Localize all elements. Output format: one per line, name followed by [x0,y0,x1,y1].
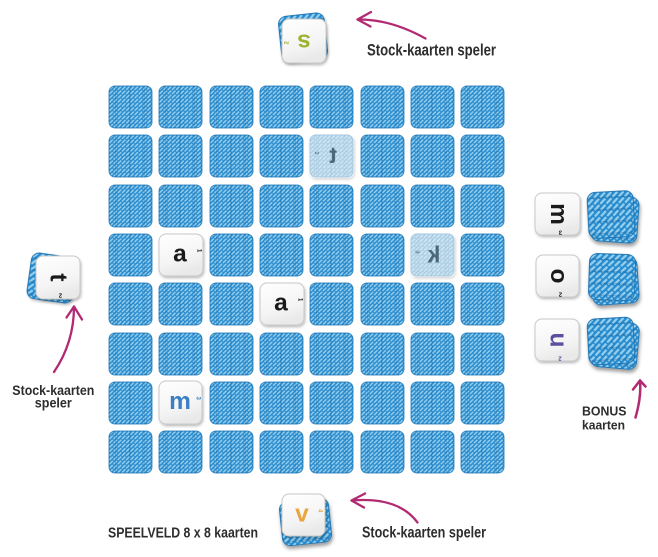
svg-text:kaarten: kaarten [582,417,625,432]
svg-text:a: a [173,241,187,268]
svg-text:speler: speler [35,394,72,410]
svg-text:o: o [545,269,572,284]
svg-text:SPEELVELD 8 x 8 kaarten: SPEELVELD 8 x 8 kaarten [108,524,258,541]
svg-text:v: v [295,501,309,528]
svg-text:m: m [169,388,191,415]
svg-text:a: a [274,290,288,317]
svg-text:3: 3 [414,250,420,253]
svg-text:Stock-kaarten speler: Stock-kaarten speler [362,525,486,542]
svg-text:t: t [45,273,72,281]
svg-text:m: m [545,203,572,225]
svg-text:1: 1 [313,151,319,154]
svg-text:t: t [329,142,337,168]
svg-text:s: s [297,29,311,56]
svg-text:u: u [545,333,572,348]
svg-text:k: k [427,242,440,268]
svg-text:Stock-kaarten speler: Stock-kaarten speler [367,40,496,59]
svg-text:BONUS: BONUS [582,404,627,419]
